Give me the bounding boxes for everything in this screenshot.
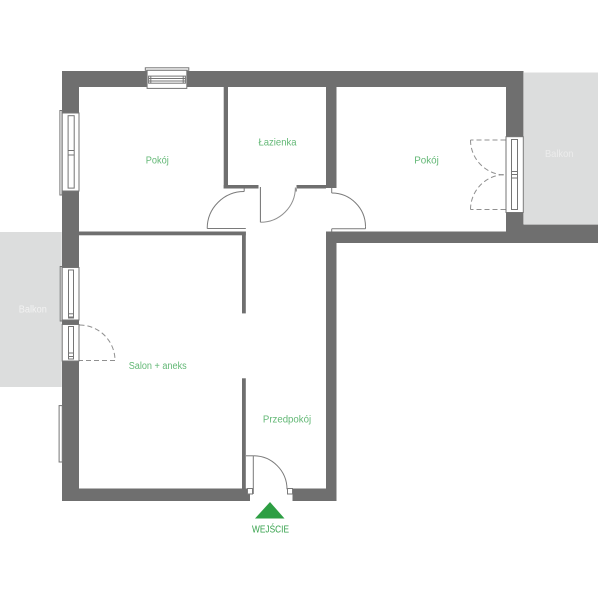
svg-text:Przedpokój: Przedpokój [263, 414, 311, 425]
svg-text:Pokój: Pokój [146, 155, 169, 166]
svg-text:Balkon: Balkon [545, 148, 574, 160]
svg-text:Balkon: Balkon [19, 305, 47, 316]
svg-text:Pokój: Pokój [414, 156, 439, 167]
svg-text:Salon + aneks: Salon + aneks [129, 361, 187, 372]
svg-text:Łazienka: Łazienka [259, 137, 297, 149]
svg-text:WEJŚCIE: WEJŚCIE [252, 522, 289, 535]
